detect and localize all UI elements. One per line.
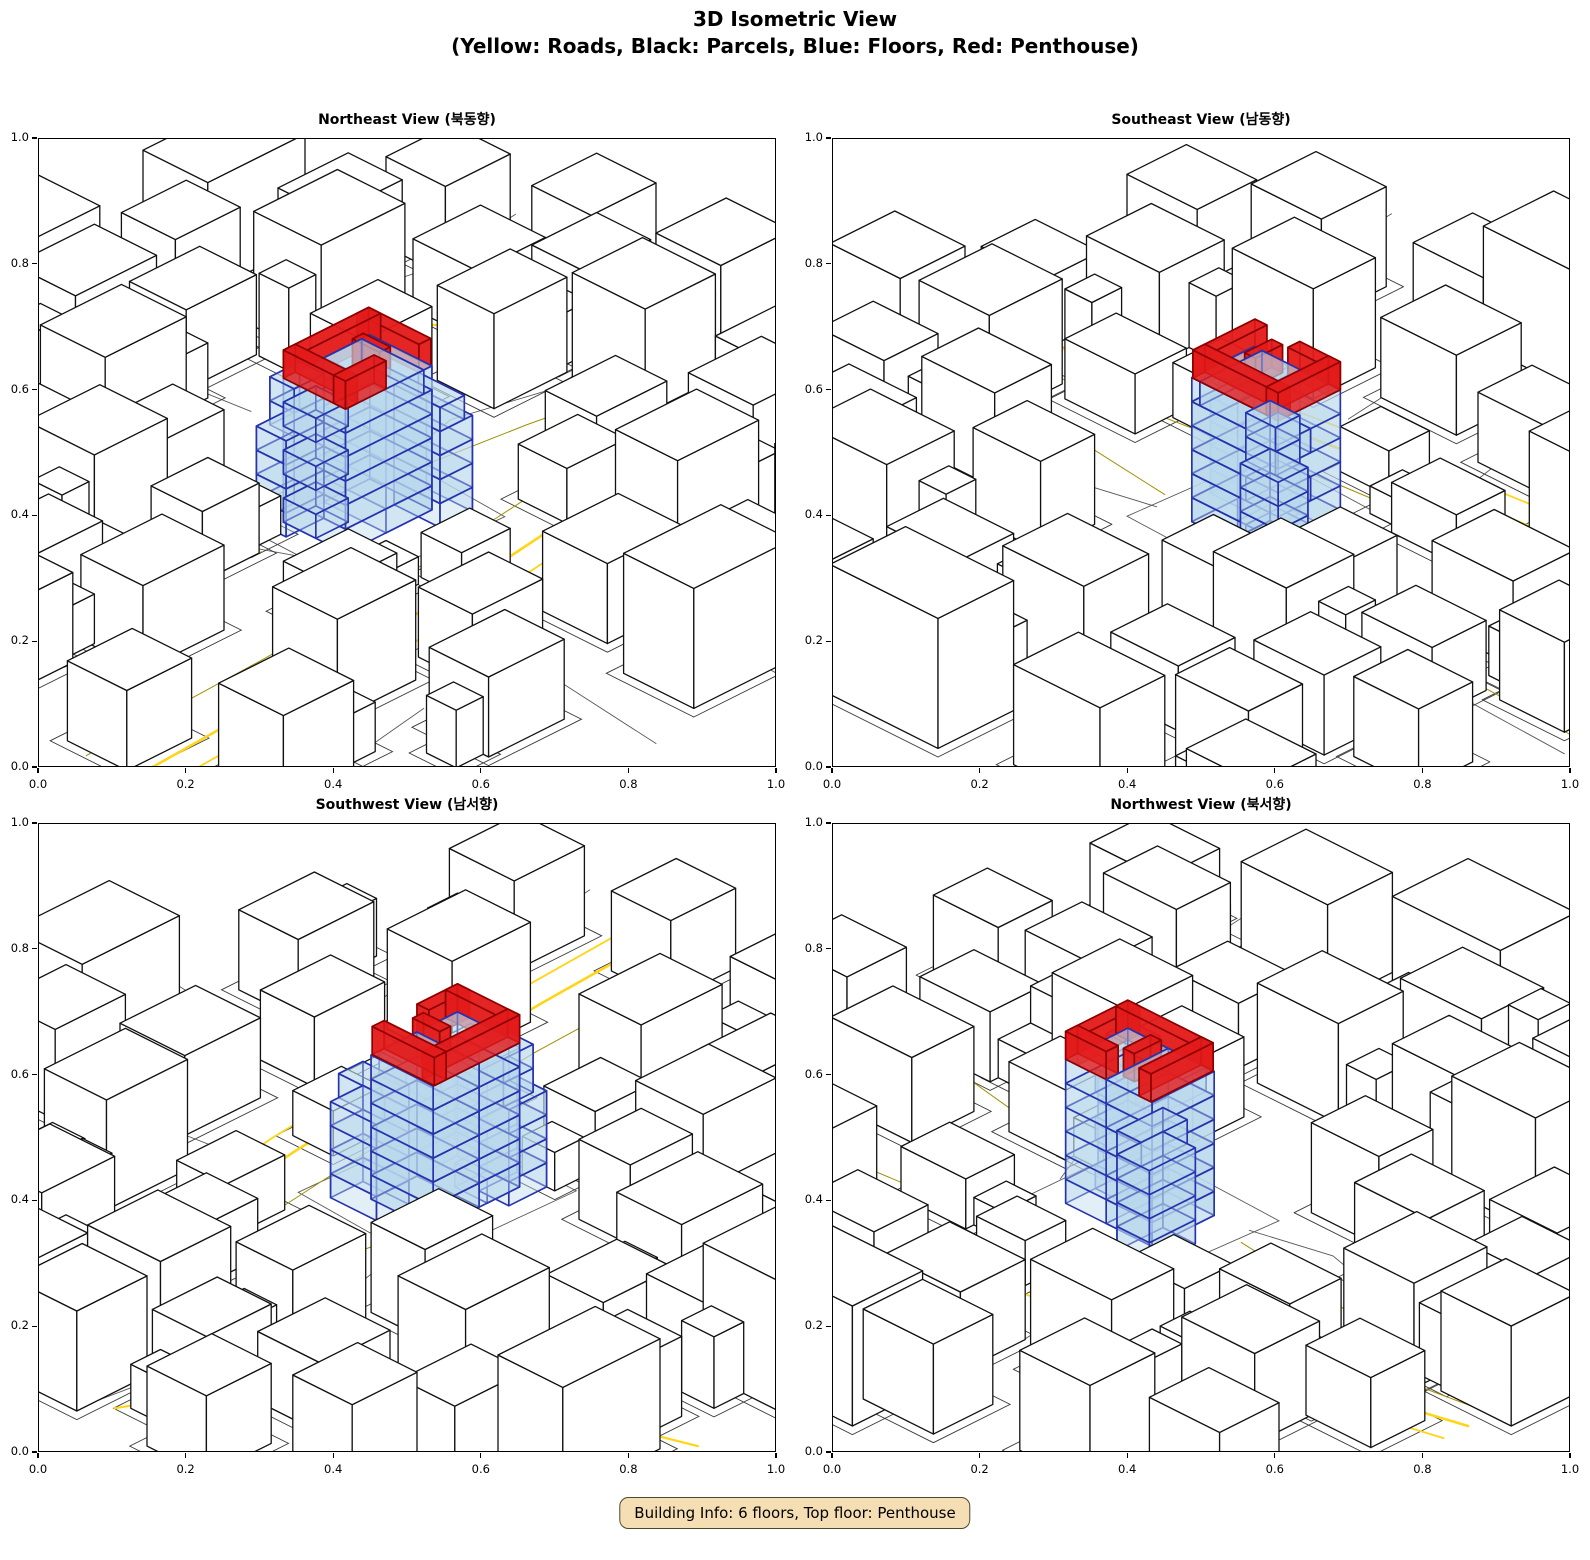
y-tick-label: 0.0 (805, 759, 823, 773)
x-tick-mark (185, 1453, 186, 1458)
x-tick-mark (628, 768, 629, 773)
x-tick-mark (480, 1453, 481, 1458)
y-tick-mark (32, 948, 37, 949)
x-tick-mark (831, 1453, 832, 1458)
y-tick-mark (32, 641, 37, 642)
plot-frame-southeast (832, 138, 1570, 767)
x-tick-mark (480, 768, 481, 773)
x-tick-label: 0.2 (970, 1462, 988, 1476)
figure-title: 3D Isometric View (Yellow: Roads, Black:… (0, 6, 1590, 60)
x-tick-mark (333, 768, 334, 773)
y-tick-label: 0.6 (805, 382, 823, 396)
y-tick-mark (826, 137, 831, 138)
x-tick-label: 0.0 (823, 1462, 841, 1476)
y-tick-label: 1.0 (11, 130, 29, 144)
y-tick-label: 0.0 (11, 1444, 29, 1458)
x-tick-label: 0.0 (29, 777, 47, 791)
x-tick-mark (37, 768, 38, 773)
y-tick-label: 0.6 (805, 1067, 823, 1081)
y-tick-mark (32, 1451, 37, 1452)
x-tick-label: 0.4 (324, 777, 342, 791)
x-tick-mark (1127, 1453, 1128, 1458)
y-tick-label: 0.8 (11, 256, 29, 270)
y-tick-mark (32, 137, 37, 138)
y-tick-label: 0.4 (11, 507, 29, 521)
x-tick-label: 0.6 (472, 777, 490, 791)
x-tick-mark (1569, 768, 1570, 773)
x-tick-mark (979, 768, 980, 773)
x-tick-label: 0.4 (1118, 1462, 1136, 1476)
y-tick-label: 0.0 (805, 1444, 823, 1458)
subplot-southwest-view: Southwest View (남서향) 0.00.00.20.20.40.40… (38, 823, 776, 1452)
y-tick-mark (826, 1074, 831, 1075)
y-tick-label: 1.0 (805, 130, 823, 144)
y-tick-mark (32, 822, 37, 823)
y-tick-mark (826, 1451, 831, 1452)
x-tick-mark (775, 768, 776, 773)
y-tick-label: 1.0 (11, 815, 29, 829)
isometric-scene-southeast (833, 139, 1569, 766)
x-tick-label: 0.0 (823, 777, 841, 791)
building-info-badge: Building Info: 6 floors, Top floor: Pent… (619, 1497, 970, 1529)
x-tick-label: 0.4 (324, 1462, 342, 1476)
isometric-scene-northeast (39, 139, 775, 766)
y-tick-mark (32, 389, 37, 390)
x-tick-mark (37, 1453, 38, 1458)
subplot-title-northwest: Northwest View (북서향) (832, 794, 1570, 814)
subplot-southeast-view: Southeast View (남동향) 0.00.00.20.20.40.40… (832, 138, 1570, 767)
figure-title-line1: 3D Isometric View (0, 6, 1590, 33)
y-tick-mark (826, 389, 831, 390)
y-tick-label: 0.8 (805, 941, 823, 955)
x-tick-mark (1274, 1453, 1275, 1458)
subplot-northeast-view: Northeast View (북동향) 0.00.00.20.20.40.40… (38, 138, 776, 767)
x-tick-label: 0.8 (619, 777, 637, 791)
x-tick-label: 1.0 (767, 1462, 785, 1476)
y-tick-label: 0.4 (11, 1192, 29, 1206)
y-tick-label: 0.2 (11, 633, 29, 647)
figure-canvas: 3D Isometric View (Yellow: Roads, Black:… (0, 0, 1590, 1560)
y-tick-mark (826, 1200, 831, 1201)
x-tick-label: 1.0 (1561, 777, 1579, 791)
plot-frame-northeast (38, 138, 776, 767)
x-tick-mark (1422, 1453, 1423, 1458)
y-tick-mark (32, 515, 37, 516)
y-tick-label: 0.2 (11, 1318, 29, 1332)
subplot-title-southeast: Southeast View (남동향) (832, 109, 1570, 129)
x-tick-label: 0.6 (472, 1462, 490, 1476)
y-tick-label: 0.6 (11, 382, 29, 396)
x-tick-label: 0.2 (176, 1462, 194, 1476)
x-tick-label: 0.2 (970, 777, 988, 791)
x-tick-label: 0.2 (176, 777, 194, 791)
y-tick-mark (32, 766, 37, 767)
y-tick-mark (826, 1326, 831, 1327)
x-tick-label: 0.0 (29, 1462, 47, 1476)
y-tick-label: 0.6 (11, 1067, 29, 1081)
x-tick-label: 0.4 (1118, 777, 1136, 791)
x-tick-label: 1.0 (1561, 1462, 1579, 1476)
plot-frame-southwest (38, 823, 776, 1452)
x-tick-label: 0.8 (619, 1462, 637, 1476)
y-tick-mark (826, 948, 831, 949)
x-tick-label: 0.6 (1266, 1462, 1284, 1476)
subplot-title-southwest: Southwest View (남서향) (38, 794, 776, 814)
x-tick-mark (1569, 1453, 1570, 1458)
y-tick-mark (826, 515, 831, 516)
plot-frame-northwest (832, 823, 1570, 1452)
x-tick-mark (1274, 768, 1275, 773)
y-tick-label: 1.0 (805, 815, 823, 829)
x-tick-mark (831, 768, 832, 773)
figure-title-line2: (Yellow: Roads, Black: Parcels, Blue: Fl… (0, 33, 1590, 60)
y-tick-label: 0.8 (11, 941, 29, 955)
x-tick-label: 0.6 (1266, 777, 1284, 791)
x-tick-mark (1127, 768, 1128, 773)
x-tick-label: 0.8 (1413, 777, 1431, 791)
y-tick-label: 0.4 (805, 507, 823, 521)
x-tick-mark (1422, 768, 1423, 773)
y-tick-label: 0.2 (805, 1318, 823, 1332)
y-tick-label: 0.0 (11, 759, 29, 773)
isometric-scene-southwest (39, 824, 775, 1451)
isometric-scene-northwest (833, 824, 1569, 1451)
x-tick-mark (333, 1453, 334, 1458)
x-tick-mark (979, 1453, 980, 1458)
y-tick-label: 0.4 (805, 1192, 823, 1206)
y-tick-mark (826, 641, 831, 642)
y-tick-mark (32, 263, 37, 264)
x-tick-label: 0.8 (1413, 1462, 1431, 1476)
subplot-northwest-view: Northwest View (북서향) 0.00.00.20.20.40.40… (832, 823, 1570, 1452)
x-tick-mark (628, 1453, 629, 1458)
y-tick-label: 0.2 (805, 633, 823, 647)
x-tick-label: 1.0 (767, 777, 785, 791)
subplot-title-northeast: Northeast View (북동향) (38, 109, 776, 129)
y-tick-mark (826, 822, 831, 823)
y-tick-label: 0.8 (805, 256, 823, 270)
y-tick-mark (32, 1200, 37, 1201)
y-tick-mark (826, 263, 831, 264)
x-tick-mark (185, 768, 186, 773)
x-tick-mark (775, 1453, 776, 1458)
y-tick-mark (32, 1326, 37, 1327)
y-tick-mark (826, 766, 831, 767)
y-tick-mark (32, 1074, 37, 1075)
